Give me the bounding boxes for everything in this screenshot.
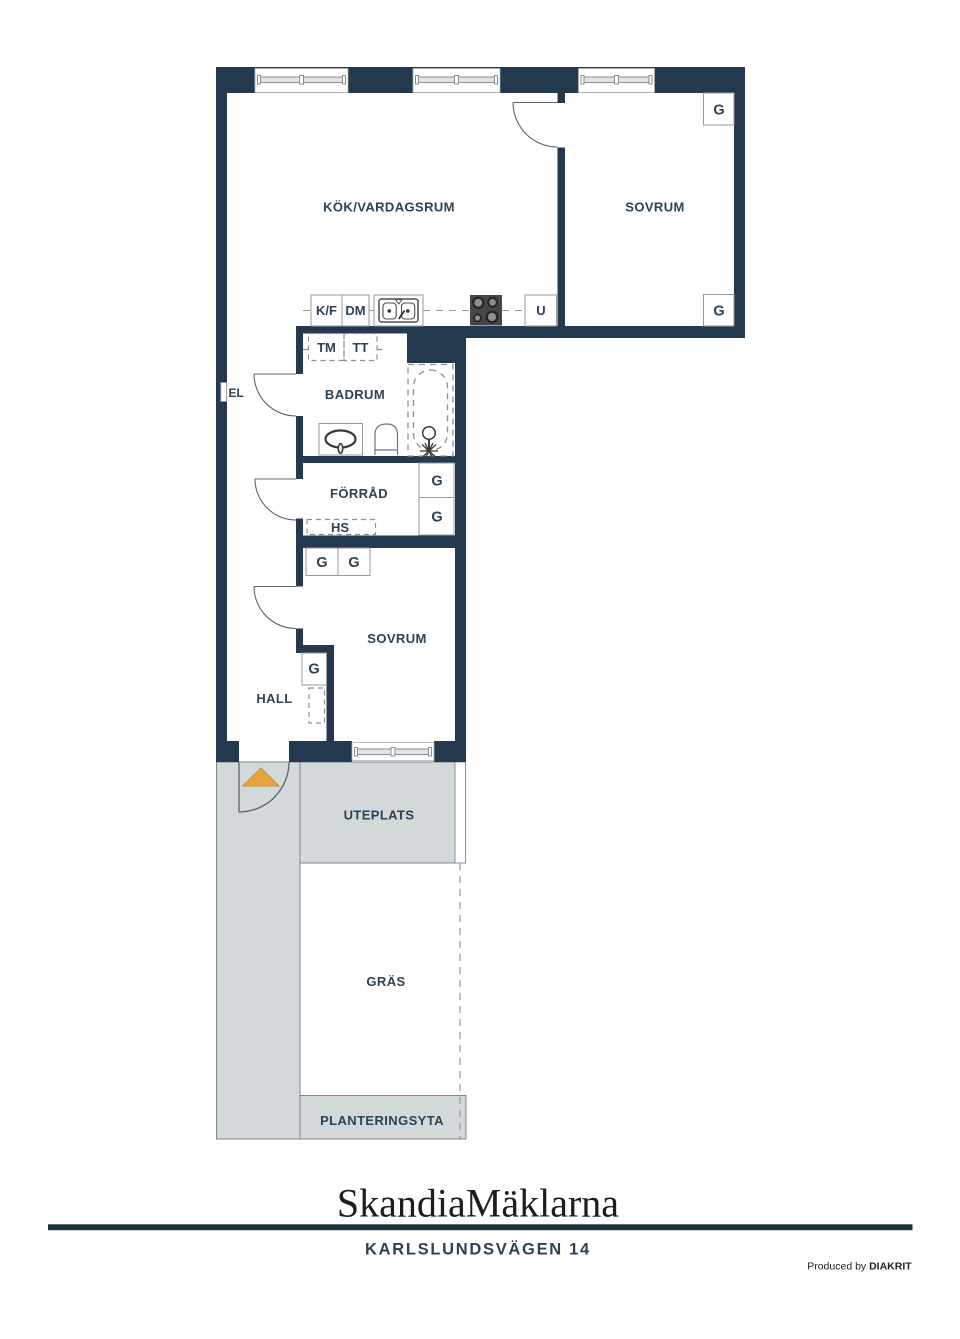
svg-text:FÖRRÅD: FÖRRÅD — [330, 486, 388, 501]
svg-text:KARLSLUNDSVÄGEN 14: KARLSLUNDSVÄGEN 14 — [365, 1241, 591, 1259]
svg-text:HS: HS — [331, 520, 349, 535]
svg-text:BADRUM: BADRUM — [325, 387, 385, 402]
svg-text:KÖK/VARDAGSRUM: KÖK/VARDAGSRUM — [323, 200, 455, 215]
svg-text:HALL: HALL — [256, 691, 292, 706]
svg-text:Produced by DIAKRIT: Produced by DIAKRIT — [807, 1261, 912, 1273]
svg-text:SOVRUM: SOVRUM — [367, 631, 426, 646]
svg-text:G: G — [713, 304, 724, 320]
svg-text:DM: DM — [345, 303, 365, 318]
svg-text:G: G — [431, 474, 442, 490]
svg-text:SkandiaMäklarna: SkandiaMäklarna — [337, 1181, 619, 1226]
svg-text:TM: TM — [317, 340, 336, 355]
svg-text:UTEPLATS: UTEPLATS — [344, 808, 415, 823]
svg-text:SOVRUM: SOVRUM — [625, 200, 684, 215]
svg-text:G: G — [316, 555, 327, 571]
svg-text:G: G — [713, 103, 724, 119]
svg-text:G: G — [308, 662, 319, 678]
svg-text:U: U — [536, 303, 545, 318]
svg-text:G: G — [348, 555, 359, 571]
svg-text:GRÄS: GRÄS — [366, 974, 405, 989]
svg-text:G: G — [431, 510, 442, 526]
svg-text:TT: TT — [353, 340, 369, 355]
svg-text:PLANTERINGSYTA: PLANTERINGSYTA — [320, 1113, 444, 1128]
svg-text:K/F: K/F — [316, 303, 337, 318]
svg-text:EL: EL — [229, 386, 244, 400]
